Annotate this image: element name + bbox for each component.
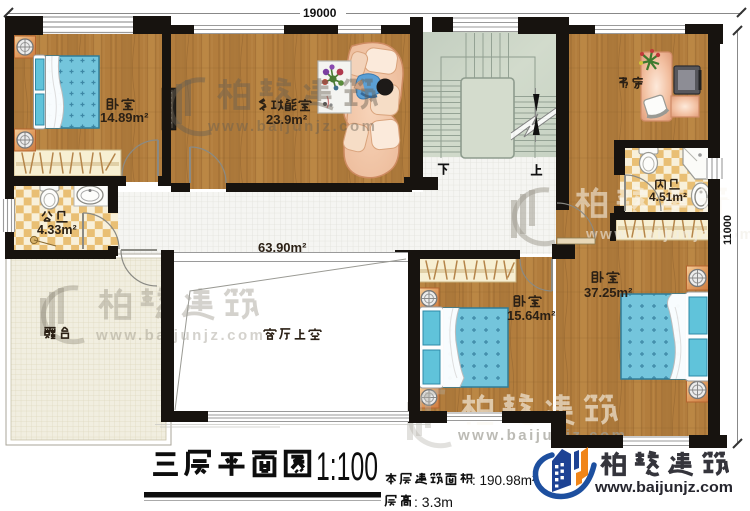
svg-text:: 3.3m: : 3.3m: [414, 494, 453, 510]
svg-text:63.90m²: 63.90m²: [258, 240, 307, 255]
svg-text:www.baijunjz.com: www.baijunjz.com: [95, 327, 265, 344]
svg-text:15.64m²: 15.64m²: [507, 308, 556, 323]
svg-text:23.9m²: 23.9m²: [266, 112, 308, 127]
svg-text:1:100: 1:100: [316, 445, 378, 489]
svg-text:11000: 11000: [722, 215, 734, 245]
svg-text:14.89m²: 14.89m²: [100, 110, 149, 125]
svg-text:37.25m²: 37.25m²: [584, 285, 633, 300]
svg-text:www.baijunjz.com: www.baijunjz.com: [594, 479, 733, 496]
svg-text:4.33m²: 4.33m²: [37, 223, 77, 237]
svg-text:19000: 19000: [303, 6, 337, 20]
svg-text:4.51m²: 4.51m²: [649, 190, 687, 204]
svg-text:: 190.98m²: : 190.98m²: [472, 473, 537, 488]
